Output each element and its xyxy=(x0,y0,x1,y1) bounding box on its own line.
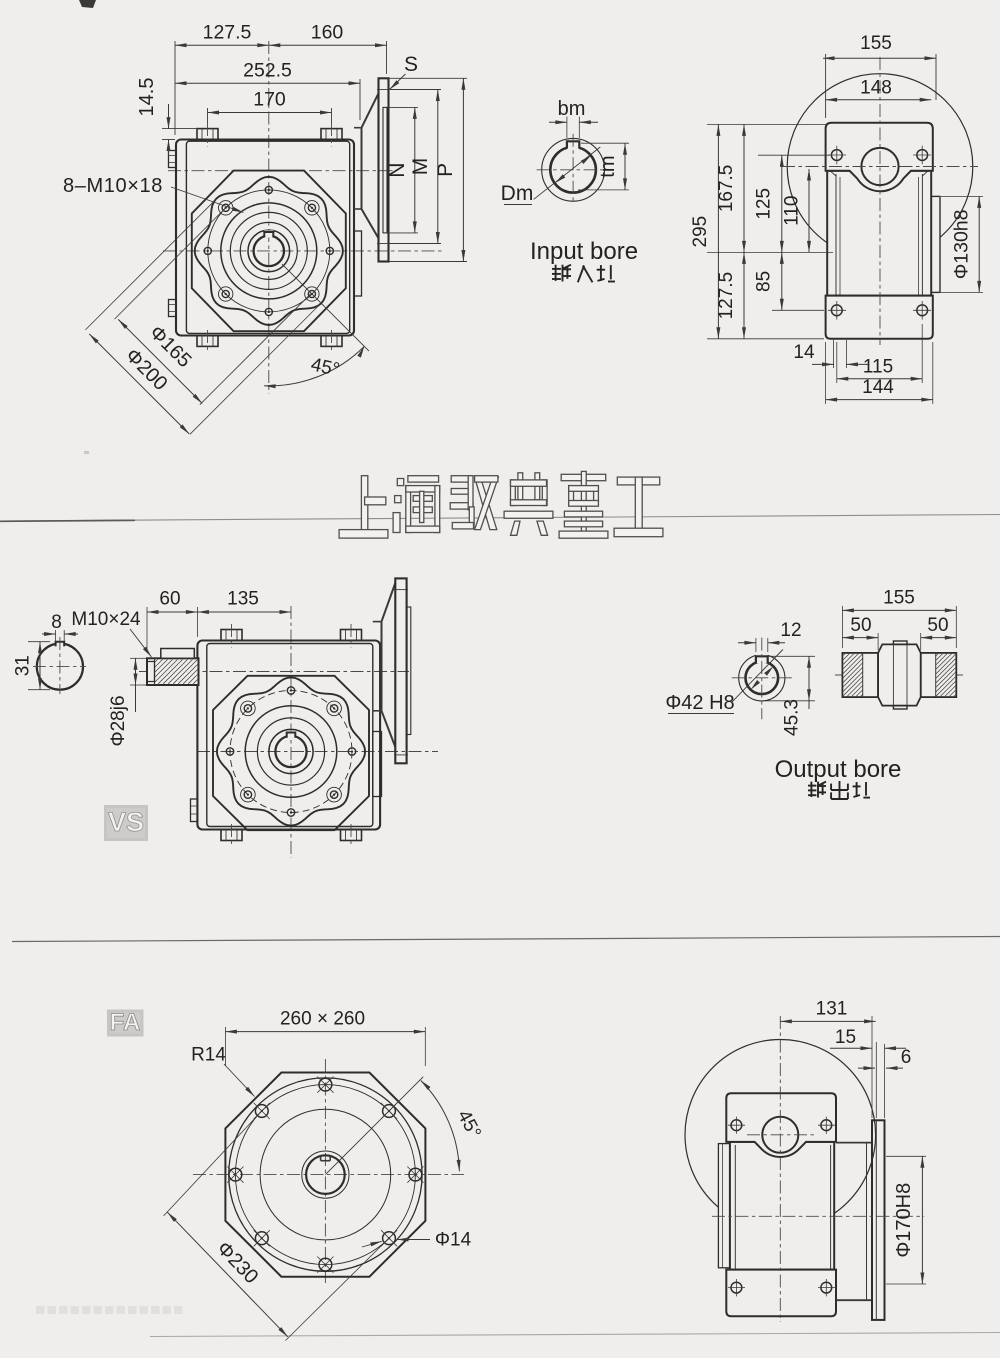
svg-text:Dm: Dm xyxy=(501,182,534,205)
svg-text:260 × 260: 260 × 260 xyxy=(280,1009,365,1030)
svg-text:14: 14 xyxy=(793,342,815,363)
svg-text:VS: VS xyxy=(108,807,144,837)
svg-text:135: 135 xyxy=(227,589,259,610)
svg-text:14.5: 14.5 xyxy=(136,78,158,117)
svg-text:131: 131 xyxy=(816,998,848,1019)
svg-text:160: 160 xyxy=(311,22,344,44)
svg-text:Φ130h8: Φ130h8 xyxy=(951,210,973,280)
svg-text:31: 31 xyxy=(13,655,34,676)
svg-text:M10×24: M10×24 xyxy=(71,609,141,630)
svg-text:Φ170H8: Φ170H8 xyxy=(893,1183,915,1258)
svg-text:170: 170 xyxy=(253,89,286,111)
svg-text:45.3: 45.3 xyxy=(782,699,803,736)
svg-text:144: 144 xyxy=(862,377,894,398)
svg-text:Φ14: Φ14 xyxy=(435,1230,472,1251)
svg-text:110: 110 xyxy=(782,196,803,226)
svg-text:155: 155 xyxy=(883,587,915,608)
svg-text:M: M xyxy=(409,158,432,176)
svg-text:8–M10×18: 8–M10×18 xyxy=(63,175,163,197)
svg-text:125: 125 xyxy=(754,188,775,220)
svg-text:295: 295 xyxy=(690,216,711,248)
svg-text:252.5: 252.5 xyxy=(243,59,292,81)
svg-text:127.5: 127.5 xyxy=(203,22,252,44)
svg-text:P: P xyxy=(434,163,457,177)
svg-text:R14: R14 xyxy=(191,1045,226,1066)
svg-text:8: 8 xyxy=(51,612,62,633)
svg-text:6: 6 xyxy=(901,1047,912,1068)
svg-text:115: 115 xyxy=(863,356,893,377)
svg-text:60: 60 xyxy=(159,589,180,610)
svg-text:148: 148 xyxy=(860,77,892,98)
svg-text:15: 15 xyxy=(835,1027,856,1048)
svg-text:Φ42 H8: Φ42 H8 xyxy=(665,692,734,714)
svg-text:tm: tm xyxy=(597,155,619,177)
svg-text:FA: FA xyxy=(110,1009,141,1036)
svg-text:bm: bm xyxy=(558,98,586,120)
svg-text:Output bore: Output bore xyxy=(775,756,902,783)
svg-text:50: 50 xyxy=(850,615,871,636)
svg-text:127.5: 127.5 xyxy=(716,272,737,320)
svg-text:Input bore: Input bore xyxy=(530,238,638,265)
svg-text:S: S xyxy=(404,53,418,76)
svg-text:167.5: 167.5 xyxy=(716,165,737,213)
svg-text:155: 155 xyxy=(860,33,892,54)
svg-text:50: 50 xyxy=(927,615,948,636)
svg-text:85: 85 xyxy=(754,271,775,292)
svg-text:Φ28j6: Φ28j6 xyxy=(108,695,129,746)
svg-text:12: 12 xyxy=(780,620,801,641)
svg-text:N: N xyxy=(386,163,409,178)
